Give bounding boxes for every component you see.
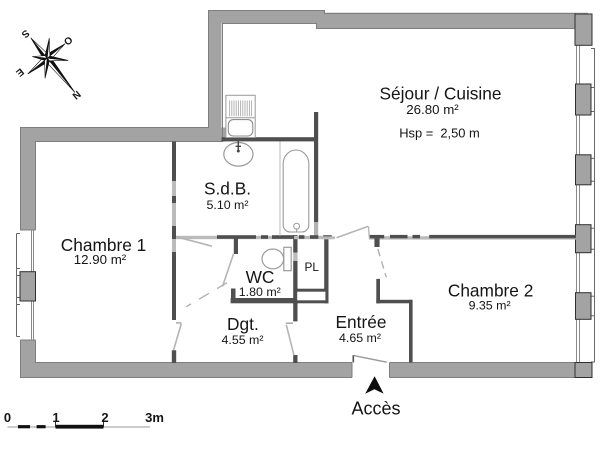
svg-text:0: 0 [4, 410, 11, 425]
svg-text:4.55 m²: 4.55 m² [221, 333, 263, 347]
svg-text:Séjour / Cuisine: Séjour / Cuisine [380, 84, 502, 104]
svg-text:26.80 m²: 26.80 m² [406, 102, 459, 117]
svg-text:1: 1 [52, 410, 59, 425]
svg-text:12.90 m²: 12.90 m² [74, 252, 127, 267]
svg-text:Dgt.: Dgt. [227, 314, 259, 334]
svg-text:S.d.B.: S.d.B. [204, 178, 251, 198]
svg-text:5.10 m²: 5.10 m² [206, 198, 248, 212]
svg-text:Chambre 2: Chambre 2 [448, 281, 534, 301]
svg-text:9.35 m²: 9.35 m² [469, 299, 511, 313]
svg-text:3m: 3m [145, 410, 164, 425]
svg-text:2: 2 [101, 410, 108, 425]
svg-text:PL: PL [304, 260, 319, 274]
svg-text:4.65 m²: 4.65 m² [339, 331, 381, 345]
svg-text:Accès: Accès [351, 399, 400, 419]
svg-text:1.80 m²: 1.80 m² [239, 285, 281, 299]
svg-text:Entrée: Entrée [336, 312, 387, 332]
svg-text:Hsp = 2,50 m: Hsp = 2,50 m [399, 126, 480, 141]
